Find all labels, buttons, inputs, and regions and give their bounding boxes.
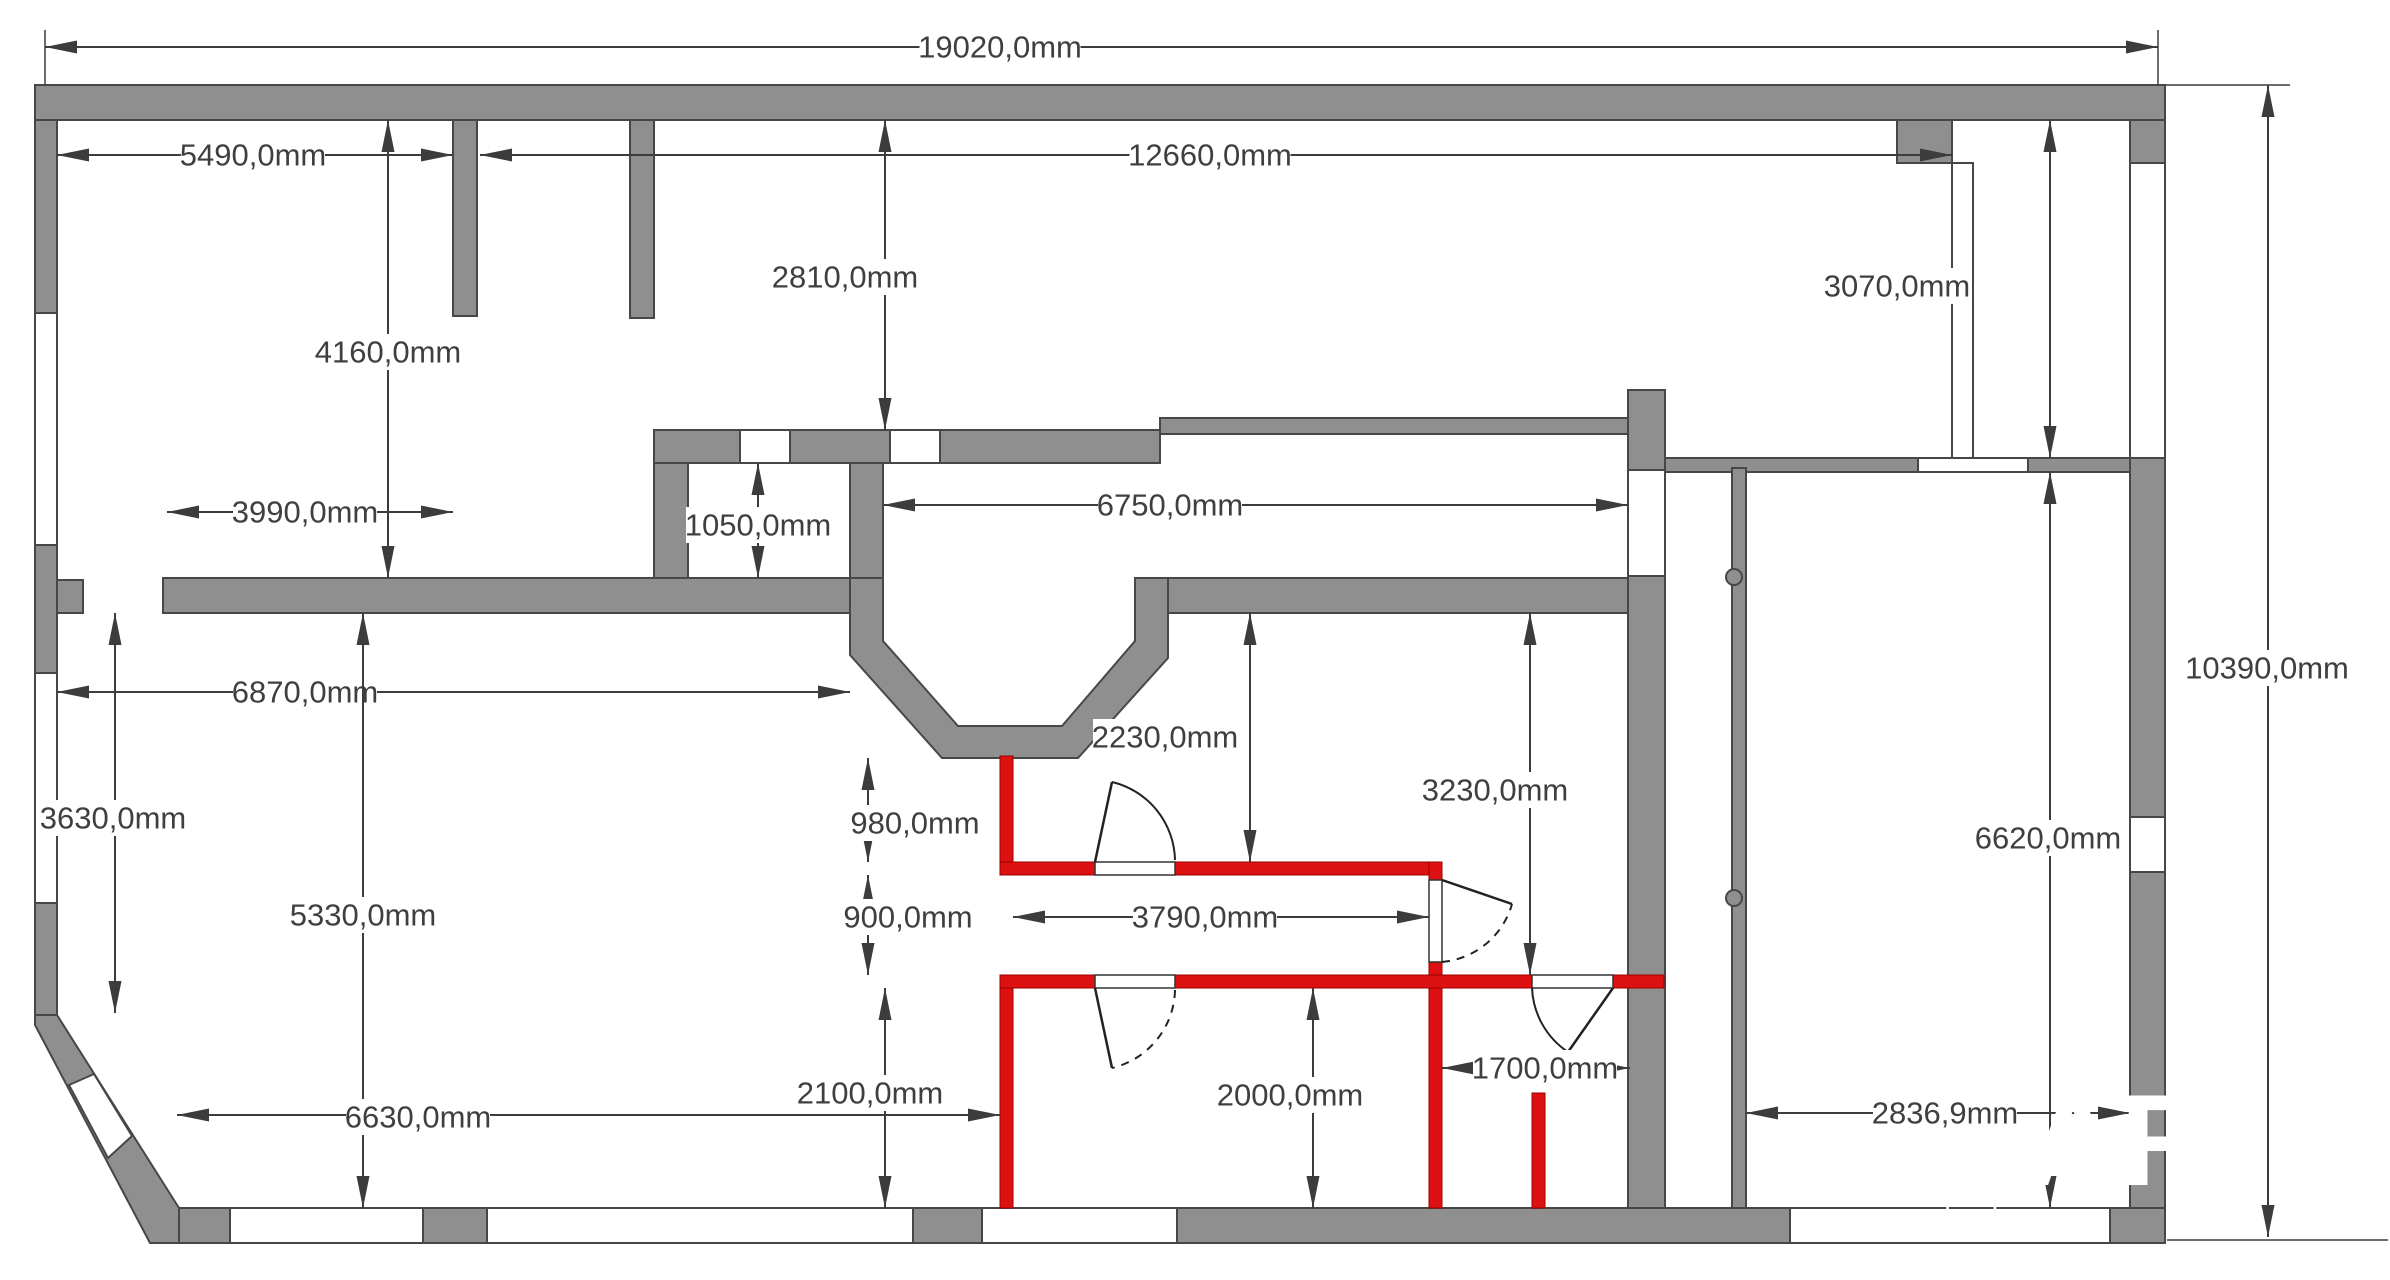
top-right-corner-block	[1897, 120, 1952, 163]
left-wall-window-lower	[35, 673, 57, 903]
door-wc-leaf	[1568, 988, 1613, 1052]
dimension-label: 4160,0mm	[315, 335, 461, 370]
new-wall-upper-horizontal	[1000, 862, 1442, 875]
door-opening-wc	[1532, 975, 1613, 988]
left-wall-window-upper	[35, 313, 57, 545]
corridor-band-thin	[1160, 418, 1628, 434]
left-wall-lower	[35, 903, 57, 1015]
mid-wall-left	[163, 578, 883, 613]
floor-plan-drawing: 19020,0mm5490,0mm12660,0mm2810,0mm4160,0…	[0, 0, 2390, 1280]
dimension-label: 6750,0mm	[1097, 488, 1243, 523]
right-wall-upper	[2130, 120, 2165, 163]
dimension-label: 980,0mm	[850, 806, 979, 841]
new-wall-wc-stub	[1532, 1093, 1545, 1208]
dimension-label: 2100,0mm	[797, 1076, 943, 1111]
bottom-wall-window-1	[230, 1208, 423, 1243]
dimension-label: 5490,0mm	[180, 138, 326, 173]
dimension-label: 2230,0mm	[1092, 720, 1238, 755]
walls-layer	[35, 85, 2165, 1243]
door-opening-upper	[1095, 862, 1175, 875]
dimension-label: 3070,0mm	[1824, 269, 1970, 304]
closet-left-wall	[654, 463, 688, 578]
door-side-room-arc	[1442, 904, 1512, 962]
dimension-label: 3630,0mm	[40, 801, 186, 836]
watermark-layer: ART L	[1939, 1067, 2214, 1228]
corridor-band-opening-1	[740, 430, 790, 463]
door-knob-lower	[1726, 890, 1742, 906]
dimension-label: 2836,9mm	[1872, 1096, 2018, 1131]
watermark-text-large: AR	[2026, 1067, 2214, 1213]
dimension-label: 2000,0mm	[1217, 1078, 1363, 1113]
partition-top-left	[453, 120, 477, 316]
door-lower-room-leaf	[1095, 988, 1112, 1068]
dimension-label: 1700,0mm	[1472, 1051, 1618, 1086]
new-wall-bay-stub	[1000, 756, 1013, 875]
dimension-label: 6630,0mm	[345, 1100, 491, 1135]
diagonal-wall-window	[69, 1074, 132, 1158]
dimension-label: 6870,0mm	[232, 675, 378, 710]
right-wall-window-lower	[2130, 817, 2165, 872]
mid-wall-right	[1135, 578, 1628, 613]
dimension-label: 3790,0mm	[1132, 900, 1278, 935]
bottom-wall-window-2	[487, 1208, 913, 1243]
door-opening-side	[1429, 880, 1442, 962]
dimension-label: 3230,0mm	[1422, 773, 1568, 808]
top-wall	[35, 85, 2165, 120]
corridor-band-opening-2	[890, 430, 940, 463]
glazed-strip-top-right	[1952, 163, 1973, 458]
left-wall-upper	[35, 120, 57, 313]
left-wall-tee	[57, 580, 83, 613]
floor-plan-page: 19020,0mm5490,0mm12660,0mm2810,0mm4160,0…	[0, 0, 2390, 1280]
new-walls-layer	[1000, 756, 1664, 1208]
dimension-label: 6620,0mm	[1975, 821, 2121, 856]
left-wall-middle	[35, 545, 57, 673]
dimension-label: 3990,0mm	[232, 495, 378, 530]
partition-top-second	[630, 120, 654, 318]
dimension-label: 900,0mm	[843, 900, 972, 935]
watermark-text-small: T L	[1939, 1197, 2021, 1228]
door-upper-room-leaf	[1095, 782, 1112, 862]
dimension-label: 2810,0mm	[772, 260, 918, 295]
right-wall-middle	[2130, 458, 2165, 817]
dimension-label: 19020,0mm	[918, 30, 1082, 65]
dimension-label: 1050,0mm	[685, 508, 831, 543]
dimensions-layer: 19020,0mm5490,0mm12660,0mm2810,0mm4160,0…	[40, 29, 2388, 1240]
dimension-label: 10390,0mm	[2185, 651, 2349, 686]
dimension-label: 5330,0mm	[290, 898, 436, 933]
door-upper-room-arc	[1112, 782, 1175, 860]
interior-wall-door-gap	[1628, 470, 1665, 576]
bottom-wall-window-3	[982, 1208, 1177, 1243]
new-wall-right-vertical-lower	[1429, 988, 1442, 1208]
door-lower-room-arc	[1112, 990, 1175, 1068]
new-wall-left-vertical-lower	[1000, 988, 1013, 1208]
door-knob-upper	[1726, 569, 1742, 585]
right-wall-window-upper	[2130, 163, 2165, 458]
door-wc-arc	[1532, 988, 1568, 1052]
door-opening-lower	[1095, 975, 1175, 988]
closet-right-wall	[850, 463, 883, 578]
door-side-room-leaf	[1442, 880, 1512, 904]
right-rooms-top-opening	[1918, 458, 2028, 472]
dimension-label: 12660,0mm	[1128, 138, 1292, 173]
